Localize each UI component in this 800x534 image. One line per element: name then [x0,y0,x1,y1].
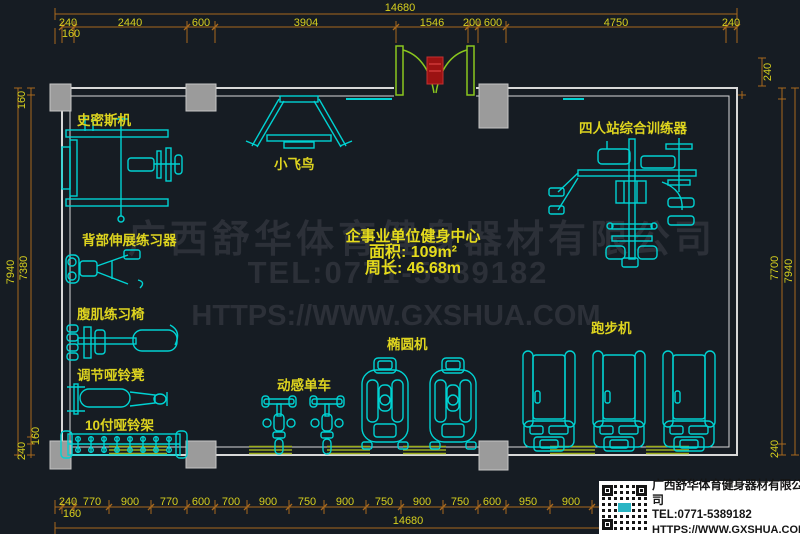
dim-bot-0: 240 [59,496,77,508]
dim-right-inner: 7700 [769,256,781,280]
dim-left-bottom-inner: 160 [30,427,42,445]
dim-bot-11: 750 [451,496,469,508]
dim-top-4: 1546 [420,17,444,29]
qr-code-icon [602,485,647,530]
back-extension-drawing [66,250,143,288]
spin-bikes-drawing [262,396,344,454]
room-info: 企事业单位健身中心 面积: 109m² 周长: 46.68m [310,229,516,277]
dim-right-outer: 7940 [783,259,795,283]
ellipticals-drawing [362,358,476,449]
dim-bot-8: 900 [336,496,354,508]
company-url: HTTPS://WWW.GXSHUA.COM [652,523,800,534]
dim-right-top: 240 [762,63,774,81]
label-elliptical: 椭圆机 [387,333,428,353]
treadmills-drawing [523,351,715,451]
dim-top-2: 600 [192,17,210,29]
dim-bot-total: 14680 [393,515,424,527]
dim-bot-6: 900 [259,496,277,508]
dim-bot-9: 750 [375,496,393,508]
label-spin-bike: 动感单车 [277,374,331,394]
dim-top-5: 200 [463,17,481,29]
adjustable-bench-drawing [67,384,167,414]
room-perimeter: 周长: 46.68m [310,261,516,277]
company-tel: TEL:0771-5389182 [652,508,800,523]
dim-bot-4: 600 [192,496,210,508]
room-title: 企事业单位健身中心 [310,229,516,245]
dim-bot-13: 950 [519,496,537,508]
dim-bot-10: 900 [413,496,431,508]
dim-top-7: 4750 [604,17,628,29]
label-treadmill: 跑步机 [591,317,632,337]
dim-left-outer: 7940 [5,260,17,284]
dim-bot-14: 900 [562,496,580,508]
room-area: 面积: 109m² [310,245,516,261]
label-back-extension: 背部伸展练习器 [82,229,177,249]
label-multi-station: 四人站综合训练器 [579,117,687,137]
dim-right-bottom: 240 [769,440,781,458]
fly-machine-drawing [246,96,352,148]
dim-bot-1: 770 [83,496,101,508]
label-fly-machine: 小飞鸟 [274,153,315,173]
dim-bot-inner: 160 [63,508,81,520]
structural-columns [50,84,508,470]
door-opening [394,82,476,99]
company-info-box: 广西舒华体育健身器材有限公司 TEL:0771-5389182 HTTPS://… [599,481,800,534]
dim-left-bottom-corner: 240 [16,442,28,460]
dim-left-inner: 7380 [18,256,30,280]
water-cooler [427,57,443,84]
dim-left-top-inner: 160 [16,91,28,109]
ab-chair-drawing [67,325,178,360]
dim-bot-5: 700 [222,496,240,508]
label-dumbbell-rack: 10付哑铃架 [85,414,154,434]
company-name: 广西舒华体育健身器材有限公司 [652,478,800,508]
qr-center-logo [618,503,631,512]
dim-bot-7: 750 [298,496,316,508]
multi-station-drawing [549,138,696,267]
label-ab-chair: 腹肌练习椅 [77,303,145,323]
dim-top-1: 2440 [118,17,142,29]
smith-machine-drawing [62,117,182,222]
dim-top-3: 3904 [294,17,318,29]
cad-drawing-canvas: 广西舒华体育健身器材有限公司 TEL:0771-5389182 HTTPS://… [0,0,800,534]
dim-top-6: 600 [484,17,502,29]
dim-bot-3: 770 [160,496,178,508]
label-adjustable-bench: 调节哑铃凳 [77,364,145,384]
dim-bot-12: 600 [483,496,501,508]
dim-top-total: 14680 [385,2,416,14]
company-info-text: 广西舒华体育健身器材有限公司 TEL:0771-5389182 HTTPS://… [652,478,800,534]
label-smith-machine: 史密斯机 [77,109,131,129]
dim-top-8: 240 [722,17,740,29]
dim-bot-2: 900 [121,496,139,508]
dim-top-inner: 160 [62,28,80,40]
